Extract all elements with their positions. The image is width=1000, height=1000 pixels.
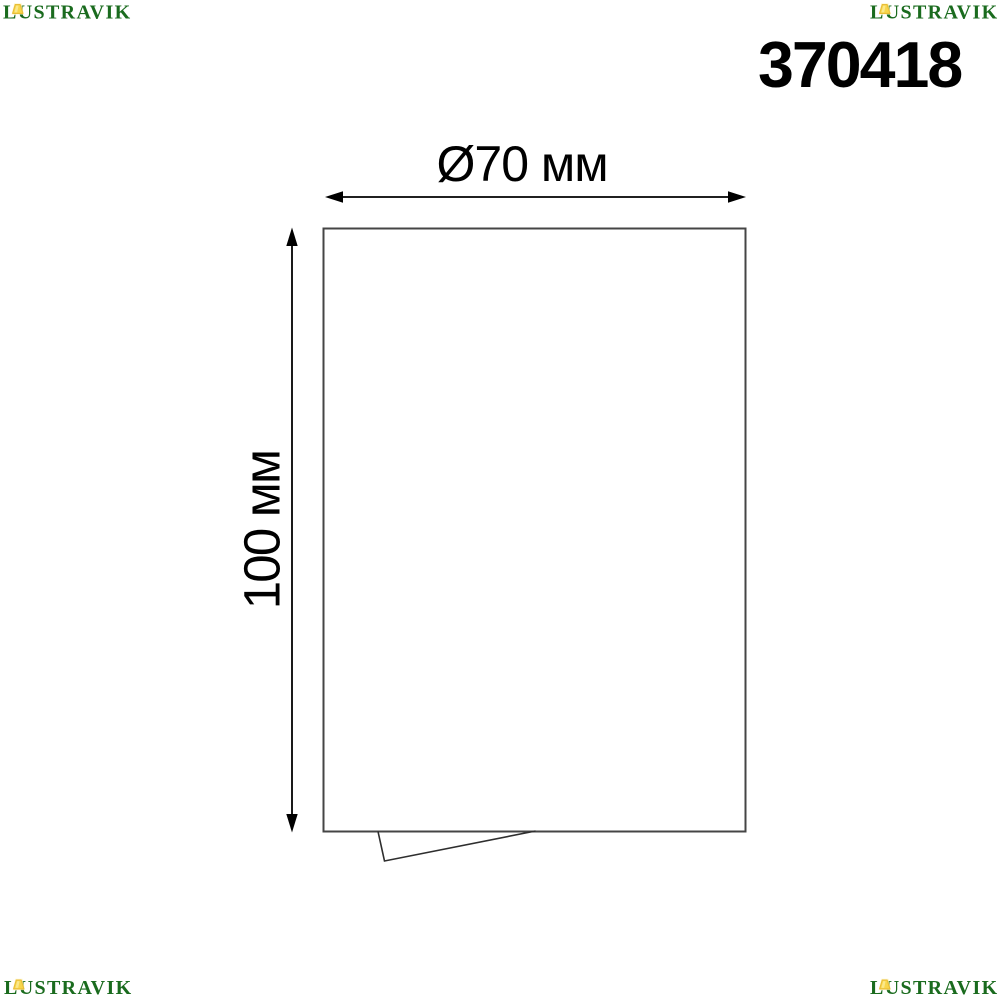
svg-text:100 мм: 100 мм xyxy=(234,451,291,610)
svg-text:370418: 370418 xyxy=(758,29,961,101)
svg-text:Ø70 мм: Ø70 мм xyxy=(437,136,608,192)
